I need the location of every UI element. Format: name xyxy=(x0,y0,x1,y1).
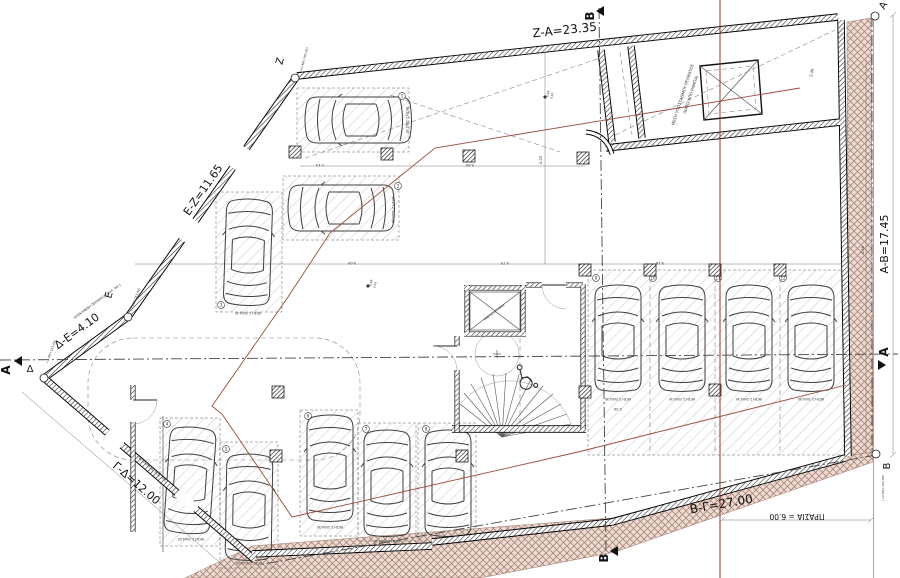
vertex-d: Δ xyxy=(27,364,34,375)
svg-text:0.45: 0.45 xyxy=(549,92,554,99)
svg-text:8: 8 xyxy=(425,427,428,432)
floor-plan-svg: 5.00 5.75 5.18 3.40 1.15 4.25 4.50 2.30 … xyxy=(0,0,900,578)
label-ab: A-B=17.45 xyxy=(878,214,891,273)
label-prasia: ΠΡΑΣΙΑ = 6.00 xyxy=(769,512,824,521)
svg-text:6: 6 xyxy=(307,414,310,419)
svg-text:ΘΕΣΗ 2.30Χ4.50: ΘΕΣΗ 2.30Χ4.50 xyxy=(736,397,762,401)
svg-text:ΘΕΣΗ 2.30Χ4.50: ΘΕΣΗ 2.30Χ4.50 xyxy=(605,397,631,401)
svg-text:ΘΕΣΗ 2.30Χ4.50: ΘΕΣΗ 2.30Χ4.50 xyxy=(798,397,824,401)
svg-text:ΘΕΣΗ 2.30Χ4.50: ΘΕΣΗ 2.30Χ4.50 xyxy=(235,311,261,315)
svg-text:1: 1 xyxy=(401,94,404,99)
svg-text:2: 2 xyxy=(397,184,400,189)
floor-plan-drawing: 5.00 5.75 5.18 3.40 1.15 4.25 4.50 2.30 … xyxy=(0,0,900,578)
dim-value: 2.30 xyxy=(613,407,622,412)
spot-elevation: 0.48 0.45 xyxy=(543,90,555,99)
svg-text:9: 9 xyxy=(595,276,598,281)
svg-text:4: 4 xyxy=(166,422,169,427)
dim-value: 5.18 xyxy=(655,261,664,266)
dim-value: 4.25 xyxy=(538,155,543,164)
svg-text:5: 5 xyxy=(225,447,228,452)
vertex-b-elev: (+0.00/+164.98) xyxy=(881,475,885,501)
section-a-left: A xyxy=(0,365,13,375)
svg-text:ΘΕΣΗ 2.30Χ4.50: ΘΕΣΗ 2.30Χ4.50 xyxy=(405,107,409,133)
spot-elevation: 0.48 0.45 xyxy=(366,279,378,288)
svg-text:ΘΕΣΗ 2.30Χ4.50: ΘΕΣΗ 2.30Χ4.50 xyxy=(317,525,343,529)
dim-value: 5.75 xyxy=(500,261,509,266)
svg-text:ΘΕΣΗ 2.30Χ4.50: ΘΕΣΗ 2.30Χ4.50 xyxy=(391,197,395,223)
dim-value: 4.50 xyxy=(860,245,865,254)
section-a-right: A xyxy=(877,347,891,357)
svg-text:ΘΕΣΗ 2.30Χ4.50: ΘΕΣΗ 2.30Χ4.50 xyxy=(236,561,262,565)
label-za: Z-A=23.35 xyxy=(532,20,598,41)
vertex-z-elev: (+0.48/+165.45) xyxy=(299,47,309,73)
label-gd: Γ-Δ=12.00 xyxy=(110,459,163,507)
ramp xyxy=(615,30,835,135)
dim-value: 3.40 xyxy=(465,163,474,168)
dim-value: 2.40 xyxy=(808,68,814,78)
fence-note: ΑΣΦΑΛΜΕΝΗ ΠΕΡΙΦΡΑΞΗ ΚΟΛ. ΑΘ.1 xyxy=(73,283,122,320)
vertex-a: A xyxy=(877,0,890,11)
section-b-bottom: B xyxy=(597,553,611,562)
svg-text:ΘΕΣΗ 2.30Χ4.50: ΘΕΣΗ 2.30Χ4.50 xyxy=(669,397,695,401)
vertex-b: B xyxy=(882,462,893,469)
svg-text:0.45: 0.45 xyxy=(372,281,377,288)
svg-text:3: 3 xyxy=(220,303,223,308)
svg-text:7: 7 xyxy=(365,427,368,432)
dim-value: 1.15 xyxy=(315,163,324,168)
vertex-z: Z xyxy=(274,56,286,66)
parking-stall xyxy=(358,423,416,541)
dim-value: 5.00 xyxy=(347,261,356,266)
svg-text:ΘΕΣΗ 2.30Χ4.50: ΘΕΣΗ 2.30Χ4.50 xyxy=(178,537,204,541)
stair-core: ΑΝΕΛΚΥΣΤΗΡΑΣ xyxy=(460,292,571,437)
